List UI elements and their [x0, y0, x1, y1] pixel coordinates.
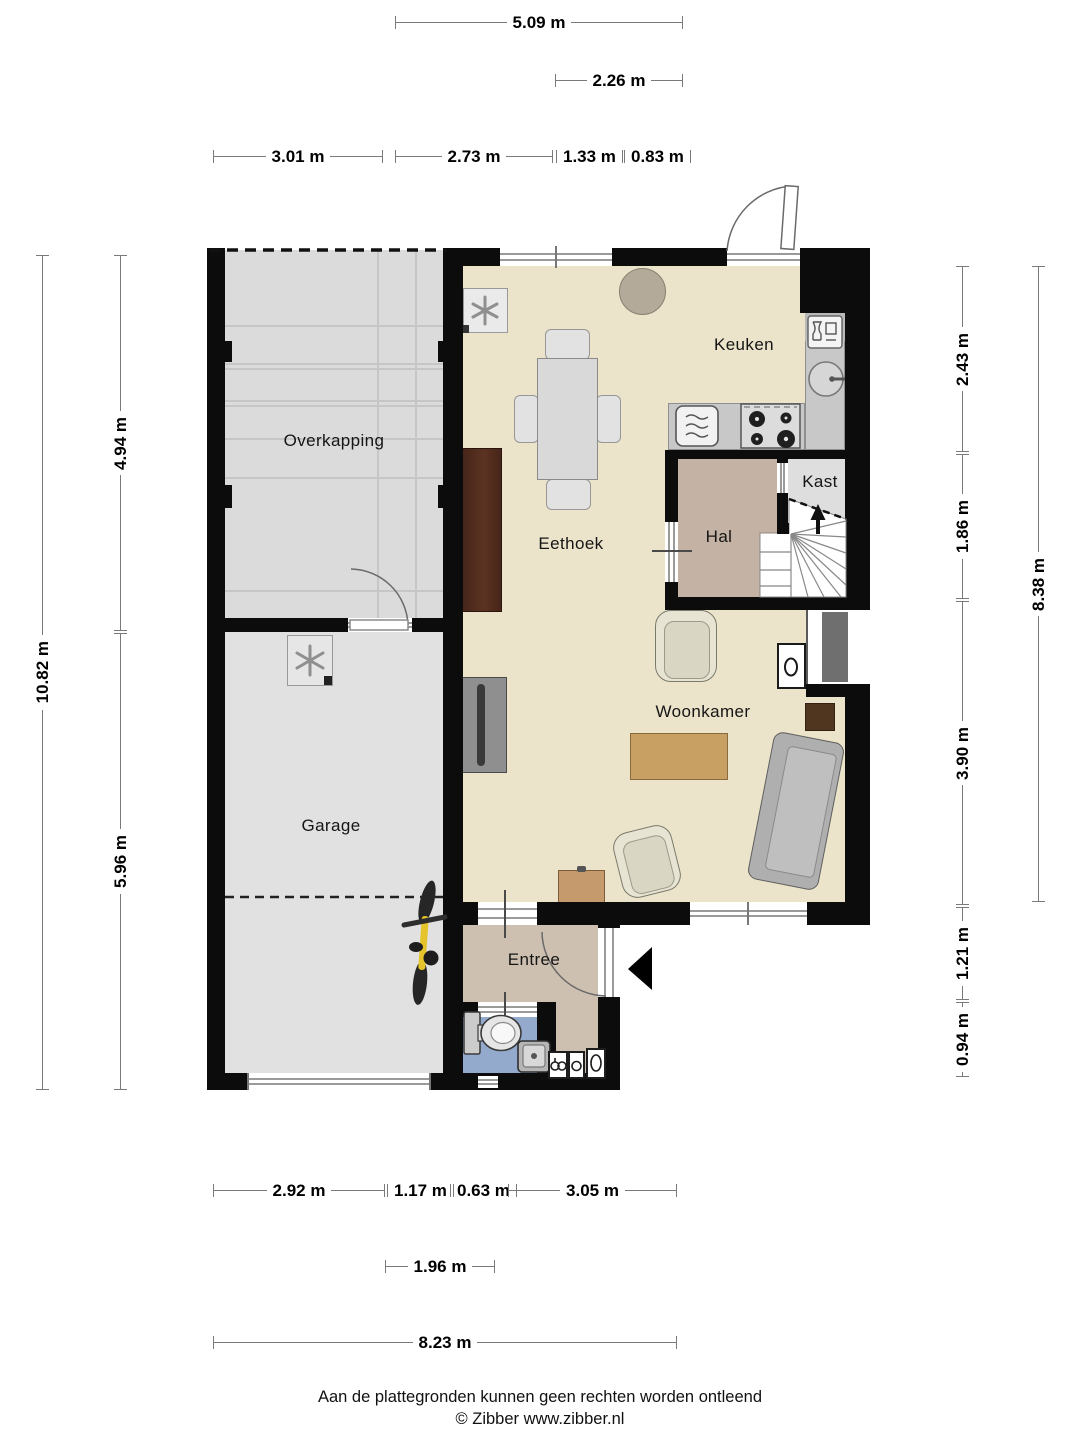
- hal-door: [665, 522, 678, 582]
- tile-line: [225, 590, 443, 592]
- room-label-garage: Garage: [301, 816, 360, 836]
- kitchen-counter: [668, 403, 805, 450]
- wall: [807, 902, 870, 925]
- front-door-opening: [598, 928, 620, 997]
- garage-floor: [225, 632, 443, 1073]
- dim-label: 1.21 m: [954, 921, 971, 986]
- window: [690, 905, 807, 922]
- wall: [612, 248, 727, 266]
- round-side-table: [619, 268, 666, 315]
- dim-label: 3.01 m: [266, 148, 331, 165]
- dining-chair: [545, 329, 590, 360]
- room-label-keuken: Keuken: [714, 335, 774, 355]
- coffee-table: [630, 733, 728, 780]
- back-door: [727, 186, 798, 251]
- dining-chair: [596, 395, 621, 443]
- dining-chair: [546, 479, 591, 510]
- dim-label: 5.09 m: [507, 14, 572, 31]
- window: [500, 249, 612, 265]
- entrance-arrow-icon: [628, 947, 652, 990]
- wall: [455, 1002, 478, 1017]
- toilet-door: [478, 1002, 537, 1017]
- wall: [537, 1017, 556, 1073]
- dim-label: 4.94 m: [112, 411, 129, 476]
- wall: [443, 248, 500, 266]
- dim-label: 5.96 m: [112, 829, 129, 894]
- pillar: [438, 341, 463, 362]
- fireplace-stove: [777, 643, 806, 689]
- tile-line: [225, 400, 443, 402]
- tile-line: [225, 363, 443, 365]
- wall: [207, 1073, 247, 1090]
- wall: [443, 248, 463, 1090]
- tile-line: [415, 250, 417, 618]
- flue: [822, 612, 848, 682]
- tall-cabinet: [462, 448, 502, 612]
- tile-line: [225, 477, 443, 479]
- dim-label: 0.83 m: [625, 148, 690, 165]
- wall: [665, 459, 678, 522]
- wall: [665, 450, 847, 459]
- tile-line: [225, 405, 443, 407]
- dining-table: [537, 358, 598, 480]
- wall: [845, 697, 870, 925]
- dim-label: 2.73 m: [442, 148, 507, 165]
- wall: [665, 597, 870, 610]
- mech-vent-unit: [463, 288, 508, 333]
- small-table-knob: [577, 866, 586, 872]
- dim-label: 8.38 m: [1030, 552, 1047, 617]
- room-label-entree: Entree: [508, 950, 561, 970]
- disclaimer-text: Aan de plattegronden kunnen geen rechten…: [0, 1388, 1080, 1407]
- mech-vent-unit: [287, 635, 333, 686]
- room-label-overkapping: Overkapping: [284, 431, 385, 451]
- wall: [777, 493, 788, 533]
- dim-label: 2.92 m: [267, 1182, 332, 1199]
- dim-label: 1.86 m: [954, 494, 971, 559]
- dining-chair: [514, 395, 539, 443]
- interior-door: [478, 902, 537, 925]
- wall: [463, 902, 478, 925]
- floorplan-canvas: Overkapping Garage Keuken Eethoek Hal Ka…: [0, 0, 1080, 1440]
- pillar: [207, 341, 232, 362]
- armchair: [655, 610, 717, 682]
- dim-label: 1.17 m: [388, 1182, 453, 1199]
- window: [478, 1076, 498, 1088]
- pillar: [438, 485, 463, 508]
- dim-label: 3.05 m: [560, 1182, 625, 1199]
- wall: [537, 1002, 556, 1017]
- pillar: [207, 485, 232, 508]
- dim-label: 0.63 m: [451, 1182, 516, 1199]
- dresser-handle: [477, 684, 485, 766]
- armchair-seat: [621, 833, 677, 896]
- dim-label: 2.26 m: [587, 72, 652, 89]
- overkapping-door-opening: [348, 618, 412, 632]
- armchair-seat: [664, 621, 710, 679]
- dim-label: 10.82 m: [34, 635, 51, 709]
- wall: [806, 684, 870, 697]
- dim-label: 2.43 m: [954, 327, 971, 392]
- back-door-opening: [727, 249, 800, 265]
- entree-floor: [556, 1002, 598, 1073]
- dim-label: 1.33 m: [557, 148, 622, 165]
- wall: [207, 248, 225, 1090]
- wall: [845, 313, 870, 597]
- dim-label: 8.23 m: [413, 1334, 478, 1351]
- dim-label: 1.96 m: [408, 1258, 473, 1275]
- wall: [427, 1073, 620, 1090]
- kast-door: [777, 463, 788, 493]
- room-label-kast: Kast: [802, 472, 838, 492]
- wall: [412, 618, 463, 632]
- wall: [800, 248, 870, 313]
- wall: [207, 618, 348, 632]
- dim-label: 0.94 m: [954, 1007, 971, 1072]
- garage-door: [247, 1073, 431, 1090]
- niche-edge: [806, 607, 808, 687]
- room-label-hal: Hal: [706, 527, 733, 547]
- dim-label: 3.90 m: [954, 721, 971, 786]
- room-label-woonkamer: Woonkamer: [656, 702, 751, 722]
- tile-line: [225, 325, 443, 327]
- credit-text: © Zibber www.zibber.nl: [0, 1410, 1080, 1429]
- wall: [598, 902, 620, 928]
- wall-shelf: [805, 703, 835, 731]
- room-label-eethoek: Eethoek: [538, 534, 603, 554]
- kitchen-counter-top: [805, 313, 845, 341]
- small-table: [558, 870, 605, 905]
- toilet-floor: [456, 1017, 537, 1073]
- tile-line: [225, 368, 443, 370]
- wall: [665, 582, 678, 597]
